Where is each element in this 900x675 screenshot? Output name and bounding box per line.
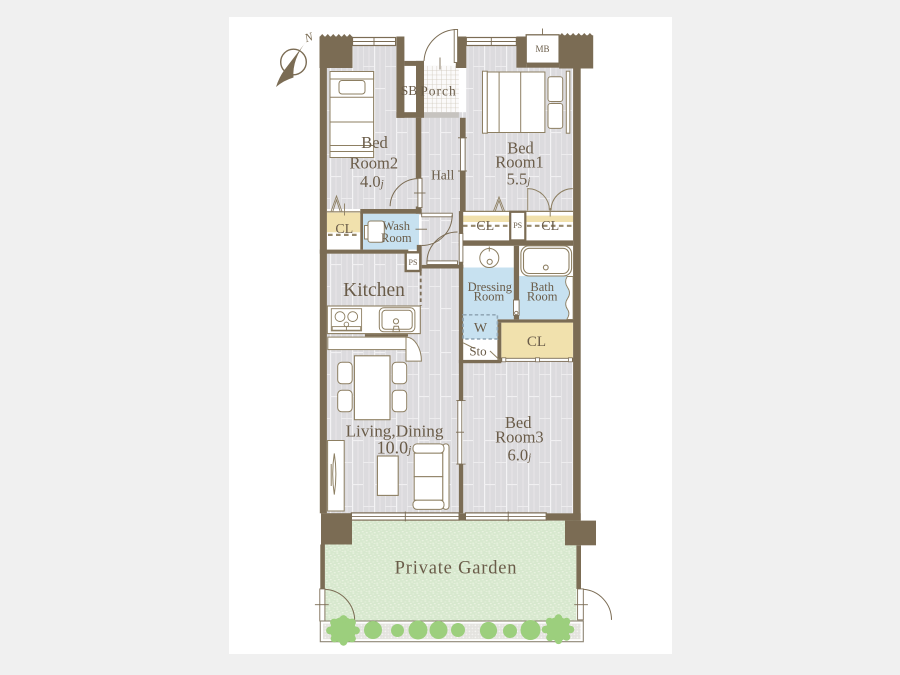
svg-text:Room2: Room2 xyxy=(350,154,399,173)
svg-text:CL: CL xyxy=(335,222,353,237)
svg-text:CL: CL xyxy=(476,219,494,234)
svg-text:Porch: Porch xyxy=(420,84,457,99)
svg-text:Hall: Hall xyxy=(431,168,454,183)
svg-text:4.0j: 4.0j xyxy=(360,172,384,191)
svg-text:Room3: Room3 xyxy=(495,428,544,447)
svg-text:Sto: Sto xyxy=(469,344,486,359)
svg-text:Bed: Bed xyxy=(361,133,388,152)
svg-text:CL: CL xyxy=(541,219,559,234)
svg-text:PS: PS xyxy=(513,221,522,230)
svg-text:PS: PS xyxy=(409,258,418,267)
svg-text:Private Garden: Private Garden xyxy=(395,559,518,579)
svg-text:Room: Room xyxy=(474,290,505,304)
svg-text:CL: CL xyxy=(527,334,546,350)
svg-text:Kitchen: Kitchen xyxy=(343,280,405,301)
svg-text:MB: MB xyxy=(535,44,549,54)
svg-text:Room: Room xyxy=(527,290,558,304)
svg-text:6.0j: 6.0j xyxy=(508,446,532,465)
svg-text:5.5j: 5.5j xyxy=(507,170,531,189)
svg-text:W: W xyxy=(474,321,488,336)
svg-text:Room: Room xyxy=(381,231,412,245)
svg-text:10.0j: 10.0j xyxy=(377,438,412,458)
svg-text:SB: SB xyxy=(401,83,418,98)
